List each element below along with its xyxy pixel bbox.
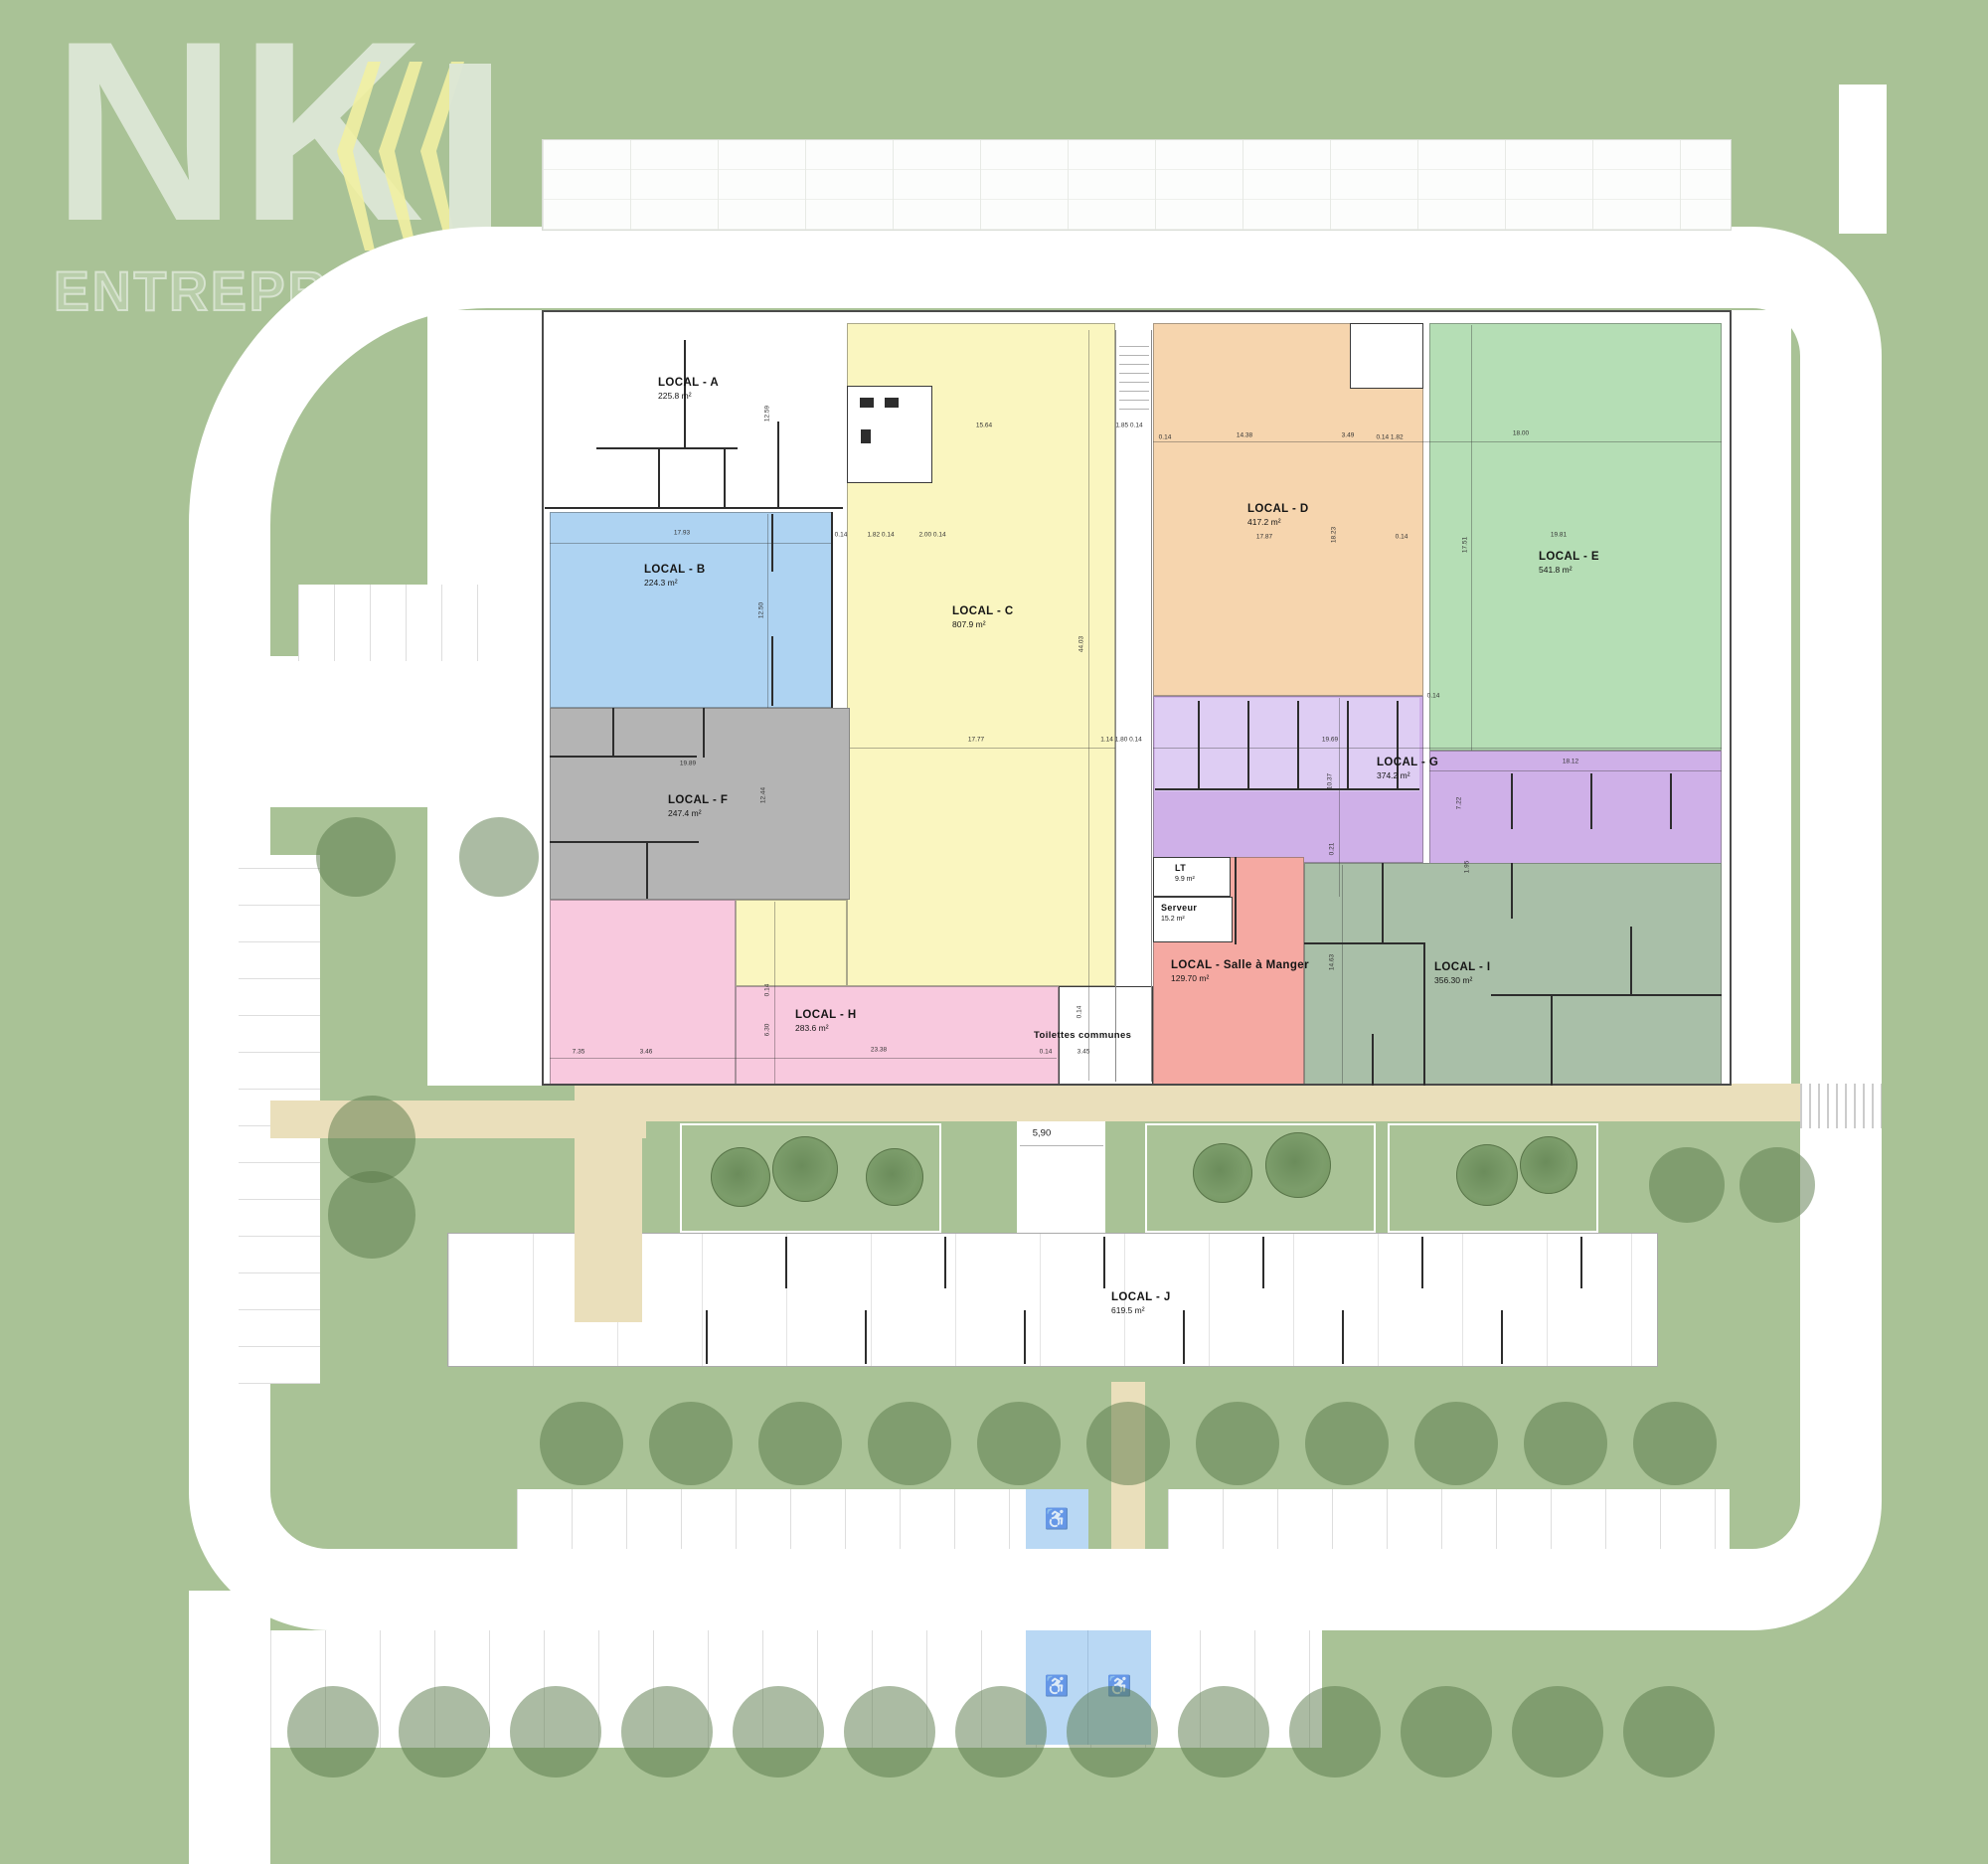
dimension-line xyxy=(1342,865,1343,1084)
dimension-line xyxy=(1153,748,1722,749)
road-top-right-stub xyxy=(1839,85,1887,234)
zone-label-f: LOCAL - F247.4 m² xyxy=(668,793,728,819)
interior-wall xyxy=(1247,701,1249,788)
interior-wall xyxy=(545,507,843,509)
planter-tree xyxy=(1520,1136,1577,1194)
interior-wall xyxy=(785,1237,787,1288)
zone-local-e xyxy=(1429,323,1722,751)
zone-label-g: LOCAL - G374.2 m² xyxy=(1377,756,1438,781)
interior-wall xyxy=(706,1310,708,1364)
dimension-label: 18.00 xyxy=(1513,430,1529,437)
dimension-label: 17.93 xyxy=(674,530,690,537)
tree xyxy=(1739,1147,1815,1223)
parking-row-mid-west xyxy=(517,1489,1088,1549)
dimension-line xyxy=(1429,770,1722,771)
dimension-label: 15.64 xyxy=(976,423,992,429)
interior-wall xyxy=(658,447,660,507)
tree xyxy=(1086,1402,1170,1485)
interior-wall xyxy=(1511,863,1513,919)
tree xyxy=(1524,1402,1607,1485)
interior-wall xyxy=(1491,994,1722,996)
tree xyxy=(955,1686,1047,1778)
interior-wall xyxy=(1297,701,1299,788)
tree xyxy=(316,817,396,897)
tree xyxy=(733,1686,824,1778)
zone-local-b xyxy=(550,512,833,708)
interior-wall xyxy=(1183,1310,1185,1364)
tree xyxy=(977,1402,1061,1485)
dimension-label: 23.38 xyxy=(871,1047,887,1054)
tree xyxy=(1196,1402,1279,1485)
dimension-line xyxy=(1119,382,1149,383)
dimension-label: 0.14 xyxy=(1159,434,1172,441)
dimension-label: 3.46 xyxy=(640,1049,653,1056)
wheelchair-icon: ♿ xyxy=(1045,1507,1070,1532)
room-label-serveur: Serveur15.2 m² xyxy=(1161,903,1197,924)
tree xyxy=(758,1402,842,1485)
dimension-label: 18.23 xyxy=(1331,527,1338,543)
zone-local-h xyxy=(736,986,1059,1086)
room-label-lt: LT9.9 m² xyxy=(1175,863,1195,884)
dimension-line xyxy=(1471,325,1472,751)
tree xyxy=(844,1686,935,1778)
tree xyxy=(1401,1686,1492,1778)
dimension-label: 7.22 xyxy=(1456,797,1463,810)
interior-wall xyxy=(860,398,874,408)
wheelchair-icon: ♿ xyxy=(1045,1674,1070,1699)
dimension-label: 0.14 xyxy=(1396,534,1408,541)
dimension-label: 0.21 xyxy=(1329,843,1336,856)
tree xyxy=(1649,1147,1725,1223)
dimension-label: 44.03 xyxy=(1078,636,1085,652)
tree xyxy=(1178,1686,1269,1778)
interior-wall xyxy=(865,1310,867,1364)
dimension-label: 0.14 xyxy=(1040,1049,1053,1056)
dimension-label: 1.85 0.14 xyxy=(1115,423,1142,429)
zone-local-g xyxy=(1429,751,1722,875)
dimension-label: 19.89 xyxy=(680,761,696,767)
dimension-label: 7.35 xyxy=(573,1049,585,1056)
dimension-line xyxy=(1339,698,1340,897)
dimension-line xyxy=(1119,346,1149,347)
zone-local-c xyxy=(736,900,847,986)
tree xyxy=(621,1686,713,1778)
dimension-line xyxy=(767,514,768,708)
interior-wall xyxy=(1024,1310,1026,1364)
interior-wall xyxy=(1580,1237,1582,1288)
planter-tree xyxy=(1193,1143,1252,1203)
dimension-label: 18.12 xyxy=(1563,759,1578,765)
upper-building-strip xyxy=(542,139,1732,231)
dimension-line xyxy=(550,543,833,544)
dimension-label: 1.95 xyxy=(1464,861,1471,874)
parking-row-mid-east xyxy=(1168,1489,1730,1549)
zone-label-i: LOCAL - I356.30 m² xyxy=(1434,960,1490,986)
zone-label-e: LOCAL - E541.8 m² xyxy=(1539,550,1599,576)
dimension-label: 10.37 xyxy=(1327,773,1334,789)
dimension-line xyxy=(1153,441,1722,442)
dimension-label: 0.14 xyxy=(835,532,848,539)
planter-tree xyxy=(772,1136,838,1202)
interior-wall xyxy=(1372,1034,1374,1086)
interior-wall xyxy=(1304,942,1423,944)
dimension-label: 19.81 xyxy=(1551,532,1567,539)
dimension-label: 0.14 xyxy=(1077,1006,1083,1019)
dimension-label: 0.14 xyxy=(1427,693,1440,700)
tree xyxy=(328,1171,415,1259)
zone-label-a: LOCAL - A225.8 m² xyxy=(658,376,719,402)
dimension-label: 12.59 xyxy=(764,406,771,422)
planter-tree xyxy=(1265,1132,1331,1198)
interior-wall xyxy=(1198,701,1200,788)
dimension-line xyxy=(1020,1145,1103,1146)
interior-wall xyxy=(885,398,899,408)
planter-tree xyxy=(711,1147,770,1207)
planter-box xyxy=(1145,1123,1376,1233)
interior-wall xyxy=(1262,1237,1264,1288)
interior-wall xyxy=(612,708,614,758)
interior-wall xyxy=(861,429,871,443)
interior-wall xyxy=(771,514,773,572)
interior-wall xyxy=(944,1237,946,1288)
dimension-line xyxy=(550,1058,1057,1059)
corridor-wall xyxy=(1151,330,1152,1082)
tree xyxy=(1067,1686,1158,1778)
dimension-line xyxy=(1119,391,1149,392)
dimension-label: 12.50 xyxy=(758,602,765,618)
tree xyxy=(649,1402,733,1485)
interior-wall xyxy=(777,422,779,507)
zone-label-b: LOCAL - B224.3 m² xyxy=(644,563,706,589)
interior-wall xyxy=(550,756,697,758)
entrance-path xyxy=(1017,1121,1105,1233)
dimension-label: 5,90 xyxy=(1033,1128,1052,1139)
tree xyxy=(1305,1402,1389,1485)
access-drive xyxy=(266,656,537,807)
dimension-label: 14.38 xyxy=(1237,432,1252,439)
dimension-line xyxy=(1088,330,1089,1081)
dimension-label: 17.87 xyxy=(1256,534,1272,541)
interior-wall xyxy=(1103,1237,1105,1288)
walkway-main xyxy=(575,1084,1800,1121)
zone-label-c: LOCAL - C807.9 m² xyxy=(952,604,1014,630)
interior-wall xyxy=(550,841,699,843)
interior-wall xyxy=(646,841,648,899)
planter-tree xyxy=(1456,1144,1518,1206)
tree xyxy=(1512,1686,1603,1778)
interior-wall xyxy=(1501,1310,1503,1364)
dimension-label: 17.51 xyxy=(1462,537,1469,553)
interior-wall xyxy=(1235,857,1237,944)
planter-tree xyxy=(866,1148,923,1206)
road-left-extension xyxy=(189,1591,270,1864)
zone-label-h: LOCAL - H283.6 m² xyxy=(795,1008,857,1034)
interior-wall xyxy=(1382,863,1384,942)
crosswalk xyxy=(1800,1084,1882,1128)
dimension-label: 3.45 xyxy=(1077,1049,1090,1056)
dimension-label: 0.14 xyxy=(764,984,771,997)
dimension-label: 19.69 xyxy=(1322,737,1338,744)
room-d-notch xyxy=(1350,323,1423,389)
dimension-line xyxy=(774,902,775,1084)
tree xyxy=(287,1686,379,1778)
dimension-label: 2.00 0.14 xyxy=(918,532,945,539)
parking-block-west xyxy=(298,585,512,661)
interior-wall xyxy=(1347,701,1349,788)
interior-wall xyxy=(1511,773,1513,829)
dimension-label: 12.44 xyxy=(760,787,767,803)
dimension-line xyxy=(1119,409,1149,410)
dimension-label: 17.77 xyxy=(968,737,984,744)
zone-label-j: LOCAL - J619.5 m² xyxy=(1111,1290,1171,1316)
zone-label-d: LOCAL - D417.2 m² xyxy=(1247,502,1309,528)
interior-wall xyxy=(1670,773,1672,829)
dimension-line xyxy=(1119,355,1149,356)
interior-wall xyxy=(1342,1310,1344,1364)
walkway-vertical-west xyxy=(575,1084,642,1322)
dimension-label: 1.82 0.14 xyxy=(867,532,894,539)
zone-local-i xyxy=(1304,863,1722,1086)
tree xyxy=(328,1096,415,1183)
tree xyxy=(459,817,539,897)
tree xyxy=(868,1402,951,1485)
room-label-toilettes: Toilettes communes xyxy=(1034,1030,1131,1042)
interior-wall xyxy=(724,447,726,507)
tree xyxy=(510,1686,601,1778)
interior-wall xyxy=(596,447,738,449)
tree xyxy=(399,1686,490,1778)
interior-wall xyxy=(1630,927,1632,994)
dimension-line xyxy=(850,748,1115,749)
interior-wall xyxy=(1423,942,1425,1086)
dimension-label: 1.14 1.80 0.14 xyxy=(1100,737,1142,744)
interior-wall xyxy=(771,636,773,706)
dimension-line xyxy=(1119,373,1149,374)
interior-wall xyxy=(703,708,705,758)
zone-label-salle: LOCAL - Salle à Manger129.70 m² xyxy=(1171,958,1309,984)
dimension-label: 14.63 xyxy=(1329,954,1336,970)
interior-wall xyxy=(1155,788,1419,790)
site-plan-canvas: NK ENTREPRISES ♿ ♿ ♿ xyxy=(0,0,1988,1864)
dimension-label: 6.30 xyxy=(764,1024,771,1037)
tree xyxy=(1623,1686,1715,1778)
dimension-line xyxy=(1119,364,1149,365)
tree xyxy=(540,1402,623,1485)
tree xyxy=(1414,1402,1498,1485)
interior-wall xyxy=(831,512,833,708)
interior-wall xyxy=(1551,994,1553,1086)
dimension-label: 3.49 xyxy=(1342,432,1355,439)
interior-wall xyxy=(1421,1237,1423,1288)
corridor-wall xyxy=(1115,330,1116,1082)
dimension-line xyxy=(1119,400,1149,401)
dimension-label: 0.14 1.82 xyxy=(1376,434,1403,441)
tree xyxy=(1289,1686,1381,1778)
interior-wall xyxy=(1590,773,1592,829)
tree xyxy=(1633,1402,1717,1485)
